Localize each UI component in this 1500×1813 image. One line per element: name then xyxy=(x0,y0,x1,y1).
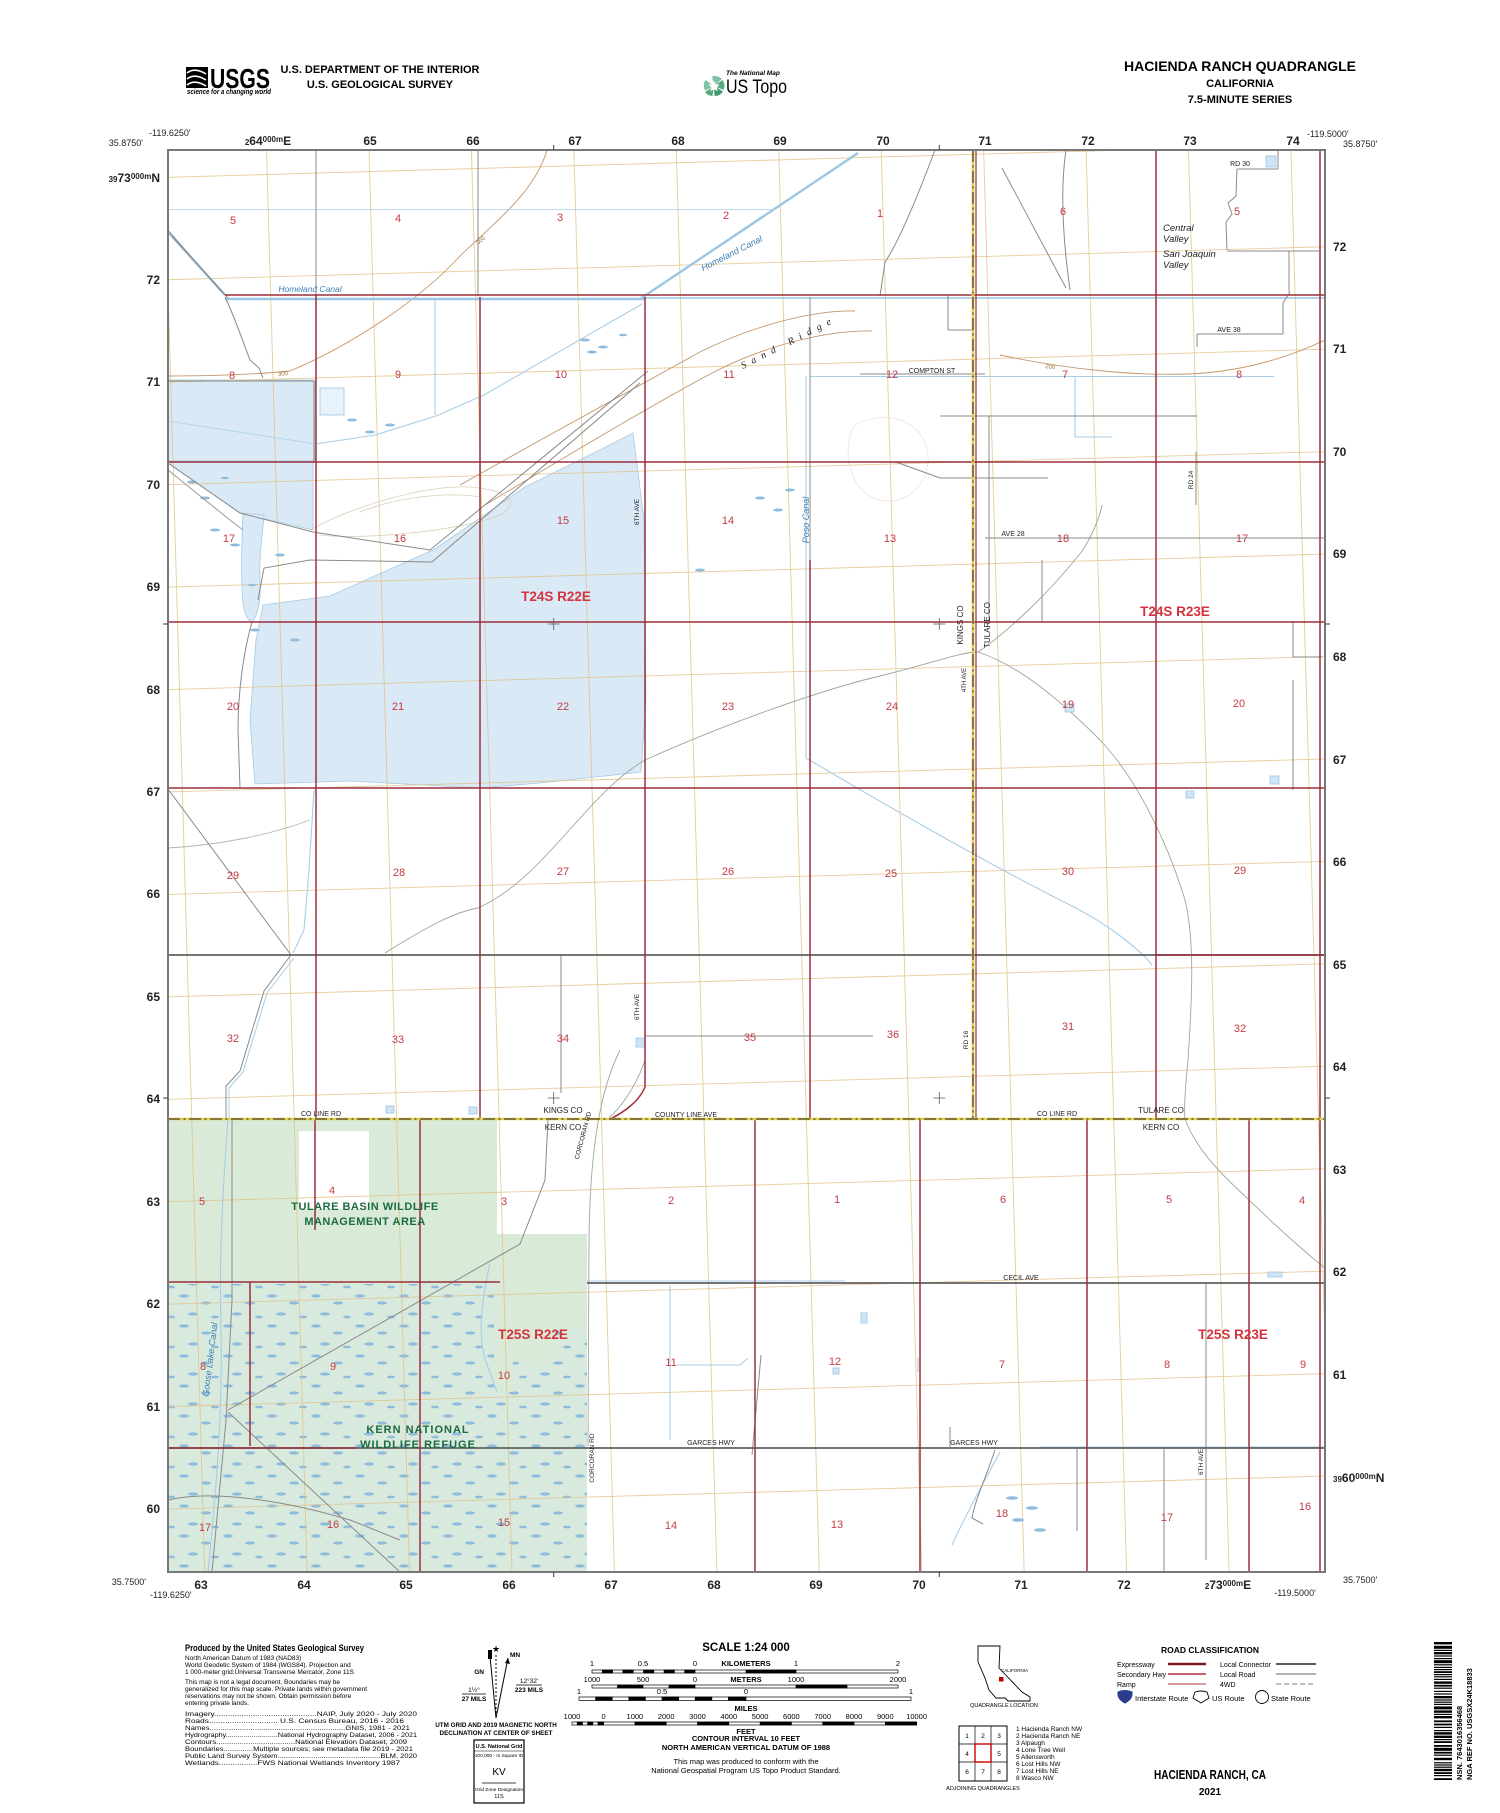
svg-text:METERS: METERS xyxy=(730,1675,761,1684)
svg-text:TULARE CO: TULARE CO xyxy=(1138,1106,1184,1115)
svg-text:70: 70 xyxy=(876,134,890,148)
svg-text:Poso Canal: Poso Canal xyxy=(801,496,811,544)
svg-text:13: 13 xyxy=(884,533,896,545)
svg-text:1: 1 xyxy=(877,208,883,220)
svg-text:TULARE CO: TULARE CO xyxy=(983,602,992,648)
svg-text:29: 29 xyxy=(227,870,239,882)
svg-text:0: 0 xyxy=(693,1659,697,1668)
svg-text:Wetlands.................FWS: Wetlands.................FWS National We… xyxy=(185,1760,400,1767)
svg-text:5: 5 xyxy=(1166,1194,1172,1206)
svg-text:6TH AVE: 6TH AVE xyxy=(1198,1448,1205,1475)
svg-text:11: 11 xyxy=(665,1357,676,1369)
svg-text:64: 64 xyxy=(1333,1060,1347,1074)
svg-text:Central: Central xyxy=(1163,223,1195,234)
svg-text:15: 15 xyxy=(557,515,569,527)
svg-text:4TH AVE: 4TH AVE xyxy=(962,668,968,692)
svg-text:US Route: US Route xyxy=(1212,1694,1245,1703)
svg-text:7 Lost Hills NE: 7 Lost Hills NE xyxy=(1016,1768,1059,1775)
svg-text:4: 4 xyxy=(395,213,401,225)
svg-text:KERN NATIONAL: KERN NATIONAL xyxy=(366,1424,469,1436)
svg-text:63: 63 xyxy=(147,1195,161,1209)
svg-text:60: 60 xyxy=(147,1502,161,1516)
svg-text:RD 30: RD 30 xyxy=(1230,161,1250,168)
svg-text:18: 18 xyxy=(1057,533,1069,545)
svg-text:-119.5000': -119.5000' xyxy=(1274,1588,1316,1598)
svg-text:72: 72 xyxy=(1081,134,1095,148)
svg-text:KILOMETERS: KILOMETERS xyxy=(721,1659,770,1668)
svg-text:17: 17 xyxy=(1161,1512,1173,1524)
svg-text:65: 65 xyxy=(399,1578,413,1592)
svg-text:32: 32 xyxy=(227,1033,239,1045)
svg-text:100,000 - m Square ID: 100,000 - m Square ID xyxy=(475,1753,524,1759)
svg-text:64: 64 xyxy=(297,1578,311,1592)
svg-text:1: 1 xyxy=(794,1659,798,1668)
svg-text:3: 3 xyxy=(501,1196,507,1208)
svg-text:72: 72 xyxy=(1333,240,1347,254)
svg-text:67: 67 xyxy=(604,1578,618,1592)
svg-text:0.5: 0.5 xyxy=(638,1659,648,1668)
svg-text:64: 64 xyxy=(147,1092,161,1106)
svg-text:CALIFORNIA: CALIFORNIA xyxy=(1001,1668,1028,1673)
svg-text:20: 20 xyxy=(227,701,239,713)
svg-text:5: 5 xyxy=(1234,206,1240,218)
svg-text:-119.5000': -119.5000' xyxy=(1307,129,1349,139)
svg-text:11S: 11S xyxy=(494,1794,504,1800)
svg-text:Valley: Valley xyxy=(1163,234,1190,245)
svg-text:NGA REF NO. USGSX24K18833: NGA REF NO. USGSX24K18833 xyxy=(1465,1668,1474,1780)
svg-text:223 MILS: 223 MILS xyxy=(515,1687,544,1694)
svg-text:10: 10 xyxy=(498,1370,510,1382)
svg-text:15: 15 xyxy=(498,1517,510,1529)
svg-text:68: 68 xyxy=(671,134,685,148)
svg-text:68: 68 xyxy=(147,683,161,697)
svg-text:This map was produced to confo: This map was produced to conform with th… xyxy=(673,1757,818,1766)
svg-text:6TH AVE: 6TH AVE xyxy=(634,498,641,525)
svg-text:HACIENDA RANCH, CA: HACIENDA RANCH, CA xyxy=(1154,1768,1266,1782)
svg-text:reservations may not be shown.: reservations may not be shown. Obtain pe… xyxy=(185,1693,352,1700)
svg-text:0.5: 0.5 xyxy=(657,1687,667,1696)
svg-text:6: 6 xyxy=(1000,1194,1006,1206)
svg-text:6: 6 xyxy=(965,1769,969,1776)
svg-text:CONTOUR INTERVAL 10 FEET: CONTOUR INTERVAL 10 FEET xyxy=(692,1734,801,1743)
svg-text:Roads.........................: Roads.............................. U.S.… xyxy=(185,1718,404,1725)
svg-text:27 MILS: 27 MILS xyxy=(462,1696,487,1703)
svg-text:GARCES HWY: GARCES HWY xyxy=(950,1440,998,1447)
svg-text:Homeland Canal: Homeland Canal xyxy=(278,284,342,294)
svg-text:35: 35 xyxy=(744,1032,756,1044)
svg-text:21: 21 xyxy=(392,701,404,713)
svg-text:36: 36 xyxy=(887,1029,899,1041)
svg-text:10: 10 xyxy=(555,369,567,381)
svg-text:63: 63 xyxy=(194,1578,208,1592)
svg-text:1 000-meter grid:Universal Tra: 1 000-meter grid:Universal Transverse Me… xyxy=(185,1669,355,1676)
svg-text:1: 1 xyxy=(577,1687,581,1696)
svg-text:67: 67 xyxy=(147,785,161,799)
svg-text:35.8750': 35.8750' xyxy=(109,138,144,148)
svg-text:17: 17 xyxy=(223,533,235,545)
svg-text:74: 74 xyxy=(1286,134,1300,148)
svg-text:SCALE 1:24 000: SCALE 1:24 000 xyxy=(702,1642,790,1654)
svg-text:CORCORAN RD: CORCORAN RD xyxy=(589,1433,596,1482)
svg-text:9: 9 xyxy=(1300,1359,1306,1371)
svg-text:11: 11 xyxy=(723,369,734,381)
svg-text:0: 0 xyxy=(693,1675,697,1684)
svg-text:71: 71 xyxy=(978,134,992,148)
svg-text:4: 4 xyxy=(329,1185,335,1197)
svg-text:★: ★ xyxy=(492,1644,500,1654)
svg-text:Grid Zone Designation: Grid Zone Designation xyxy=(475,1787,523,1793)
svg-text:8: 8 xyxy=(997,1769,1001,1776)
svg-text:69: 69 xyxy=(1333,547,1347,561)
svg-text:19: 19 xyxy=(1062,699,1074,711)
svg-text:67: 67 xyxy=(1333,753,1347,767)
svg-text:5: 5 xyxy=(199,1196,205,1208)
svg-text:0: 0 xyxy=(602,1712,606,1721)
svg-text:1000: 1000 xyxy=(627,1712,644,1721)
svg-text:7: 7 xyxy=(981,1769,985,1776)
svg-text:34: 34 xyxy=(557,1033,569,1045)
svg-text:Names.........................: Names...................................… xyxy=(185,1725,410,1732)
svg-text:Local Road: Local Road xyxy=(1220,1672,1256,1679)
svg-text:World Geodetic System of 1984: World Geodetic System of 1984 (WGS84). P… xyxy=(185,1662,351,1669)
svg-text:1: 1 xyxy=(909,1687,913,1696)
svg-text:35.8750': 35.8750' xyxy=(1343,139,1378,149)
svg-text:1: 1 xyxy=(590,1659,594,1668)
svg-text:entering private lands.: entering private lands. xyxy=(185,1700,249,1707)
svg-text:1000: 1000 xyxy=(788,1675,805,1684)
svg-text:7000: 7000 xyxy=(814,1712,831,1721)
svg-text:generalized for this map scale: generalized for this map scale. Private … xyxy=(185,1686,367,1693)
svg-text:QUADRANGLE LOCATION: QUADRANGLE LOCATION xyxy=(970,1703,1038,1709)
svg-text:1000: 1000 xyxy=(584,1675,601,1684)
svg-text:COMPTON ST: COMPTON ST xyxy=(909,368,956,375)
svg-text:3: 3 xyxy=(997,1733,1001,1740)
svg-text:33: 33 xyxy=(392,1034,404,1046)
svg-text:National Geospatial Program US: National Geospatial Program US Topo Prod… xyxy=(651,1766,841,1775)
svg-text:-119.6250': -119.6250' xyxy=(150,1590,192,1600)
svg-text:9: 9 xyxy=(330,1361,336,1373)
svg-text:RD 16: RD 16 xyxy=(963,1030,970,1049)
svg-text:The National Map: The National Map xyxy=(726,70,780,77)
svg-text:9: 9 xyxy=(395,369,401,381)
svg-text:Imagery.......................: Imagery.................................… xyxy=(185,1711,417,1718)
svg-text:26: 26 xyxy=(722,866,734,878)
svg-text:science for a changing world: science for a changing world xyxy=(187,87,271,96)
svg-text:T24S R23E: T24S R23E xyxy=(1140,604,1210,619)
svg-text:6TH AVE: 6TH AVE xyxy=(634,993,641,1020)
svg-text:71: 71 xyxy=(1014,1578,1028,1592)
svg-text:GN: GN xyxy=(474,1669,484,1676)
svg-text:63: 63 xyxy=(1333,1163,1347,1177)
svg-text:69: 69 xyxy=(773,134,787,148)
svg-text:2 Hacienda Ranch NE: 2 Hacienda Ranch NE xyxy=(1016,1733,1081,1740)
svg-text:1 Hacienda Ranch NW: 1 Hacienda Ranch NW xyxy=(1016,1726,1083,1733)
svg-text:17: 17 xyxy=(199,1522,211,1534)
svg-text:27: 27 xyxy=(557,866,569,878)
svg-text:73: 73 xyxy=(1183,134,1197,148)
svg-text:14: 14 xyxy=(665,1520,677,1532)
svg-text:8: 8 xyxy=(1236,369,1242,381)
svg-text:1: 1 xyxy=(965,1733,969,1740)
svg-text:2021: 2021 xyxy=(1199,1787,1222,1798)
svg-text:4: 4 xyxy=(1299,1195,1305,1207)
svg-text:69: 69 xyxy=(809,1578,823,1592)
svg-text:5: 5 xyxy=(997,1751,1001,1758)
svg-text:2: 2 xyxy=(981,1733,985,1740)
svg-text:10000: 10000 xyxy=(906,1712,927,1721)
svg-text:2: 2 xyxy=(723,210,729,222)
svg-text:71: 71 xyxy=(147,375,161,389)
svg-text:4000: 4000 xyxy=(720,1712,737,1721)
svg-text:Hydrography...................: Hydrography..........................Nat… xyxy=(185,1732,417,1739)
svg-text:25: 25 xyxy=(885,868,897,880)
svg-text:28: 28 xyxy=(393,867,405,879)
svg-text:31: 31 xyxy=(1062,1021,1074,1033)
svg-text:8: 8 xyxy=(1164,1359,1170,1371)
svg-text:12: 12 xyxy=(829,1356,841,1368)
svg-text:3 Alpaugh: 3 Alpaugh xyxy=(1016,1740,1045,1747)
svg-text:3: 3 xyxy=(557,212,563,224)
svg-text:4 Lone Tree Well: 4 Lone Tree Well xyxy=(1016,1747,1066,1754)
svg-text:US Topo: US Topo xyxy=(726,77,787,98)
svg-text:17: 17 xyxy=(1236,533,1248,545)
svg-text:8000: 8000 xyxy=(846,1712,863,1721)
svg-text:TULARE BASIN WILDLIFE: TULARE BASIN WILDLIFE xyxy=(291,1201,438,1213)
svg-text:29: 29 xyxy=(1234,865,1246,877)
svg-text:70: 70 xyxy=(1333,445,1347,459)
svg-text:2: 2 xyxy=(896,1659,900,1668)
svg-text:62: 62 xyxy=(1333,1265,1347,1279)
svg-text:Boundaries..............Multip: Boundaries..............Multiple sources… xyxy=(185,1746,413,1753)
svg-text:69: 69 xyxy=(147,580,161,594)
svg-text:9000: 9000 xyxy=(877,1712,894,1721)
svg-text:8: 8 xyxy=(229,370,235,382)
svg-text:-119.6250': -119.6250' xyxy=(149,128,191,138)
svg-text:NORTH AMERICAN VERTICAL DATUM: NORTH AMERICAN VERTICAL DATUM OF 1988 xyxy=(662,1743,830,1752)
svg-text:ROAD CLASSIFICATION: ROAD CLASSIFICATION xyxy=(1161,1645,1259,1655)
svg-text:72: 72 xyxy=(147,273,161,287)
svg-text:65: 65 xyxy=(147,990,161,1004)
svg-text:RD 24: RD 24 xyxy=(1188,470,1195,489)
svg-text:Secondary Hwy: Secondary Hwy xyxy=(1117,1672,1167,1679)
svg-text:MANAGEMENT AREA: MANAGEMENT AREA xyxy=(304,1216,425,1228)
svg-text:66: 66 xyxy=(502,1578,516,1592)
svg-text:AVE 38: AVE 38 xyxy=(1217,327,1240,334)
svg-text:Produced by the United States: Produced by the United States Geological… xyxy=(185,1643,365,1654)
svg-text:66: 66 xyxy=(147,887,161,901)
svg-text:5: 5 xyxy=(230,215,236,227)
svg-text:12°32': 12°32' xyxy=(520,1677,538,1685)
svg-text:500: 500 xyxy=(637,1675,650,1684)
svg-text:T25S R22E: T25S R22E xyxy=(498,1327,568,1342)
svg-text:UTM GRID AND 2019 MAGNETIC NOR: UTM GRID AND 2019 MAGNETIC NORTH xyxy=(435,1722,557,1729)
svg-text:71: 71 xyxy=(1333,342,1347,356)
svg-text:70: 70 xyxy=(147,478,161,492)
svg-text:24: 24 xyxy=(886,701,898,713)
svg-text:Expressway: Expressway xyxy=(1117,1662,1155,1669)
svg-text:San Joaquin: San Joaquin xyxy=(1163,249,1216,260)
svg-text:U.S. GEOLOGICAL SURVEY: U.S. GEOLOGICAL SURVEY xyxy=(307,79,454,91)
svg-text:7: 7 xyxy=(1062,369,1068,381)
svg-text:DECLINATION AT CENTER OF SHEET: DECLINATION AT CENTER OF SHEET xyxy=(440,1730,553,1737)
svg-text:This map is not a legal docume: This map is not a legal document. Bounda… xyxy=(185,1679,340,1686)
svg-text:20: 20 xyxy=(1233,698,1245,710)
svg-text:NSN. 7643016356468: NSN. 7643016356468 xyxy=(1455,1706,1464,1780)
svg-text:1000: 1000 xyxy=(564,1712,581,1721)
svg-text:2000: 2000 xyxy=(658,1712,675,1721)
svg-text:68: 68 xyxy=(707,1578,721,1592)
svg-text:18: 18 xyxy=(996,1508,1008,1520)
svg-text:23: 23 xyxy=(722,701,734,713)
svg-text:CALIFORNIA: CALIFORNIA xyxy=(1206,78,1274,90)
svg-text:HACIENDA RANCH QUADRANGLE: HACIENDA RANCH QUADRANGLE xyxy=(1124,58,1356,74)
svg-text:61: 61 xyxy=(147,1400,161,1414)
svg-text:U.S. National Grid: U.S. National Grid xyxy=(476,1744,523,1750)
svg-text:65: 65 xyxy=(363,134,377,148)
svg-text:CO LINE RD: CO LINE RD xyxy=(301,1111,341,1118)
svg-text:30: 30 xyxy=(1062,866,1074,878)
svg-text:35.7500': 35.7500' xyxy=(112,1577,147,1587)
svg-text:KV: KV xyxy=(492,1767,506,1778)
svg-text:1: 1 xyxy=(834,1194,840,1206)
svg-text:Public Land Survey Syste: Public Land Survey System...............… xyxy=(185,1753,417,1760)
svg-text:Ramp: Ramp xyxy=(1117,1682,1136,1689)
svg-text:65: 65 xyxy=(1333,958,1347,972)
svg-text:MN: MN xyxy=(510,1652,520,1659)
svg-text:GARCES HWY: GARCES HWY xyxy=(687,1440,735,1447)
svg-text:7: 7 xyxy=(999,1359,1005,1371)
svg-text:North American Datum of 1983 (: North American Datum of 1983 (NAD83) xyxy=(185,1655,301,1662)
svg-text:AVE 28: AVE 28 xyxy=(1001,531,1024,538)
svg-text:70: 70 xyxy=(912,1578,926,1592)
svg-text:6 Lost Hills NW: 6 Lost Hills NW xyxy=(1016,1761,1061,1768)
svg-text:16: 16 xyxy=(394,533,406,545)
svg-text:2000: 2000 xyxy=(890,1675,907,1684)
svg-text:T24S R22E: T24S R22E xyxy=(521,589,591,604)
svg-text:KINGS CO: KINGS CO xyxy=(956,605,965,644)
svg-text:61: 61 xyxy=(1333,1368,1347,1382)
svg-text:3000: 3000 xyxy=(689,1712,706,1721)
svg-text:KERN CO: KERN CO xyxy=(545,1123,581,1132)
svg-text:2: 2 xyxy=(668,1195,674,1207)
svg-text:14: 14 xyxy=(722,515,734,527)
svg-text:4WD: 4WD xyxy=(1220,1682,1236,1689)
svg-text:WILDLIFE REFUGE: WILDLIFE REFUGE xyxy=(360,1439,476,1451)
svg-text:66: 66 xyxy=(1333,855,1347,869)
svg-text:22: 22 xyxy=(557,701,569,713)
svg-text:KERN CO: KERN CO xyxy=(1143,1123,1179,1132)
svg-text:4: 4 xyxy=(965,1751,969,1758)
svg-text:8 Wasco NW: 8 Wasco NW xyxy=(1016,1775,1055,1782)
svg-text:1½°: 1½° xyxy=(468,1686,480,1694)
svg-text:U.S. DEPARTMENT OF THE INTERIO: U.S. DEPARTMENT OF THE INTERIOR xyxy=(280,64,479,76)
svg-text:T25S R23E: T25S R23E xyxy=(1198,1327,1268,1342)
svg-text:ADJOINING QUADRANGLES: ADJOINING QUADRANGLES xyxy=(946,1786,1020,1792)
svg-text:Local Connector: Local Connector xyxy=(1220,1662,1272,1669)
svg-text:35.7500': 35.7500' xyxy=(1343,1575,1378,1585)
svg-text:66: 66 xyxy=(466,134,480,148)
svg-text:7.5-MINUTE SERIES: 7.5-MINUTE SERIES xyxy=(1188,94,1293,106)
svg-text:State Route: State Route xyxy=(1271,1694,1311,1703)
svg-text:0: 0 xyxy=(744,1687,748,1696)
svg-text:67: 67 xyxy=(568,134,582,148)
svg-text:16: 16 xyxy=(327,1519,339,1531)
svg-text:300: 300 xyxy=(278,371,289,378)
svg-text:COUNTY LINE AVE: COUNTY LINE AVE xyxy=(655,1112,717,1119)
svg-text:5000: 5000 xyxy=(752,1712,769,1721)
svg-text:68: 68 xyxy=(1333,650,1347,664)
svg-text:CECIL AVE: CECIL AVE xyxy=(1003,1275,1039,1282)
svg-text:32: 32 xyxy=(1234,1023,1246,1035)
svg-text:62: 62 xyxy=(147,1297,161,1311)
svg-text:5 Allensworth: 5 Allensworth xyxy=(1016,1754,1055,1761)
svg-text:Interstate Route: Interstate Route xyxy=(1135,1694,1188,1703)
svg-text:16: 16 xyxy=(1299,1501,1311,1513)
svg-text:72: 72 xyxy=(1117,1578,1131,1592)
svg-text:KINGS CO: KINGS CO xyxy=(543,1106,582,1115)
svg-text:13: 13 xyxy=(831,1519,843,1531)
svg-text:CO LINE RD: CO LINE RD xyxy=(1037,1111,1077,1118)
svg-text:Contours......................: Contours................................… xyxy=(185,1739,407,1746)
svg-text:Valley: Valley xyxy=(1163,260,1190,271)
svg-text:6000: 6000 xyxy=(783,1712,800,1721)
svg-text:6: 6 xyxy=(1060,206,1066,218)
svg-text:12: 12 xyxy=(886,369,898,381)
